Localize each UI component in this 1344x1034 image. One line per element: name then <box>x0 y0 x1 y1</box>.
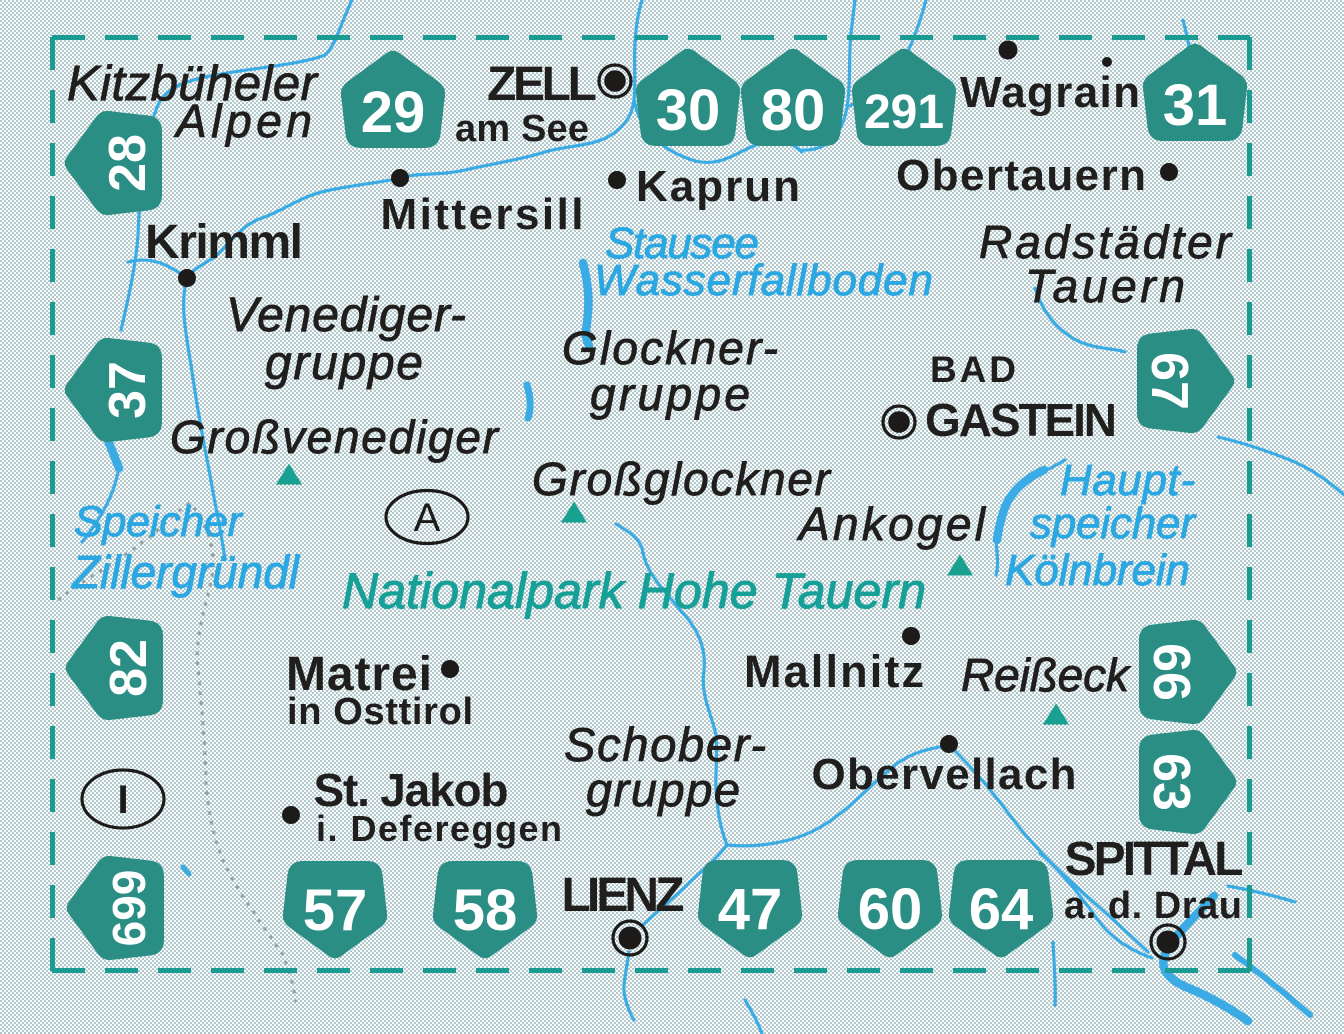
svg-text:28: 28 <box>99 134 157 192</box>
svg-text:47: 47 <box>718 877 783 942</box>
svg-text:I: I <box>117 778 128 822</box>
svg-text:Zillergründl: Zillergründl <box>71 546 301 598</box>
svg-text:gruppe: gruppe <box>590 368 750 420</box>
svg-text:80: 80 <box>761 78 826 143</box>
svg-text:GASTEIN: GASTEIN <box>925 394 1117 446</box>
svg-text:gruppe: gruppe <box>265 337 423 390</box>
svg-text:Nationalpark Hohe Tauern: Nationalpark Hohe Tauern <box>342 563 926 619</box>
svg-text:Obertauern: Obertauern <box>896 151 1146 200</box>
svg-text:Mittersill: Mittersill <box>381 190 584 239</box>
svg-text:29: 29 <box>361 80 426 145</box>
svg-text:82: 82 <box>100 639 158 697</box>
svg-text:speicher: speicher <box>1030 499 1197 548</box>
svg-text:60: 60 <box>858 877 923 942</box>
svg-text:Venediger-: Venediger- <box>226 289 466 342</box>
svg-text:Mallnitz: Mallnitz <box>744 646 924 697</box>
svg-text:58: 58 <box>453 878 518 943</box>
svg-text:57: 57 <box>303 878 368 943</box>
svg-text:Wagrain: Wagrain <box>960 68 1140 117</box>
svg-text:291: 291 <box>864 86 944 139</box>
svg-text:Kaprun: Kaprun <box>636 162 800 211</box>
svg-text:Glockner-: Glockner- <box>562 322 778 374</box>
svg-text:Alpen: Alpen <box>173 95 312 147</box>
svg-text:BAD: BAD <box>930 349 1016 390</box>
svg-text:Wasserfallboden: Wasserfallboden <box>594 256 933 305</box>
svg-text:Speicher: Speicher <box>74 498 244 546</box>
svg-text:31: 31 <box>1163 73 1228 138</box>
svg-text:37: 37 <box>99 361 157 419</box>
svg-text:66: 66 <box>1142 643 1200 701</box>
svg-text:63: 63 <box>1142 753 1200 811</box>
svg-text:A: A <box>414 496 441 540</box>
svg-text:64: 64 <box>969 877 1034 942</box>
svg-text:LIENZ: LIENZ <box>562 869 685 922</box>
svg-text:ZELL: ZELL <box>487 58 597 111</box>
svg-text:a. d. Drau: a. d. Drau <box>1064 885 1242 927</box>
svg-text:30: 30 <box>656 78 721 143</box>
svg-text:Großvenediger: Großvenediger <box>170 411 500 463</box>
svg-text:Kölnbrein: Kölnbrein <box>1005 546 1190 595</box>
svg-text:am See: am See <box>455 108 589 150</box>
svg-text:Reißeck: Reißeck <box>961 649 1131 701</box>
svg-text:Ankogel: Ankogel <box>796 498 987 550</box>
svg-text:Haupt-: Haupt- <box>1060 456 1195 505</box>
svg-text:gruppe: gruppe <box>586 763 740 816</box>
svg-text:SPITTAL: SPITTAL <box>1065 833 1244 886</box>
svg-text:in Osttirol: in Osttirol <box>287 691 473 733</box>
svg-text:i. Defereggen: i. Defereggen <box>316 808 562 849</box>
svg-text:699: 699 <box>103 870 155 947</box>
svg-text:Krimml: Krimml <box>145 216 303 269</box>
svg-text:67: 67 <box>1140 352 1198 410</box>
